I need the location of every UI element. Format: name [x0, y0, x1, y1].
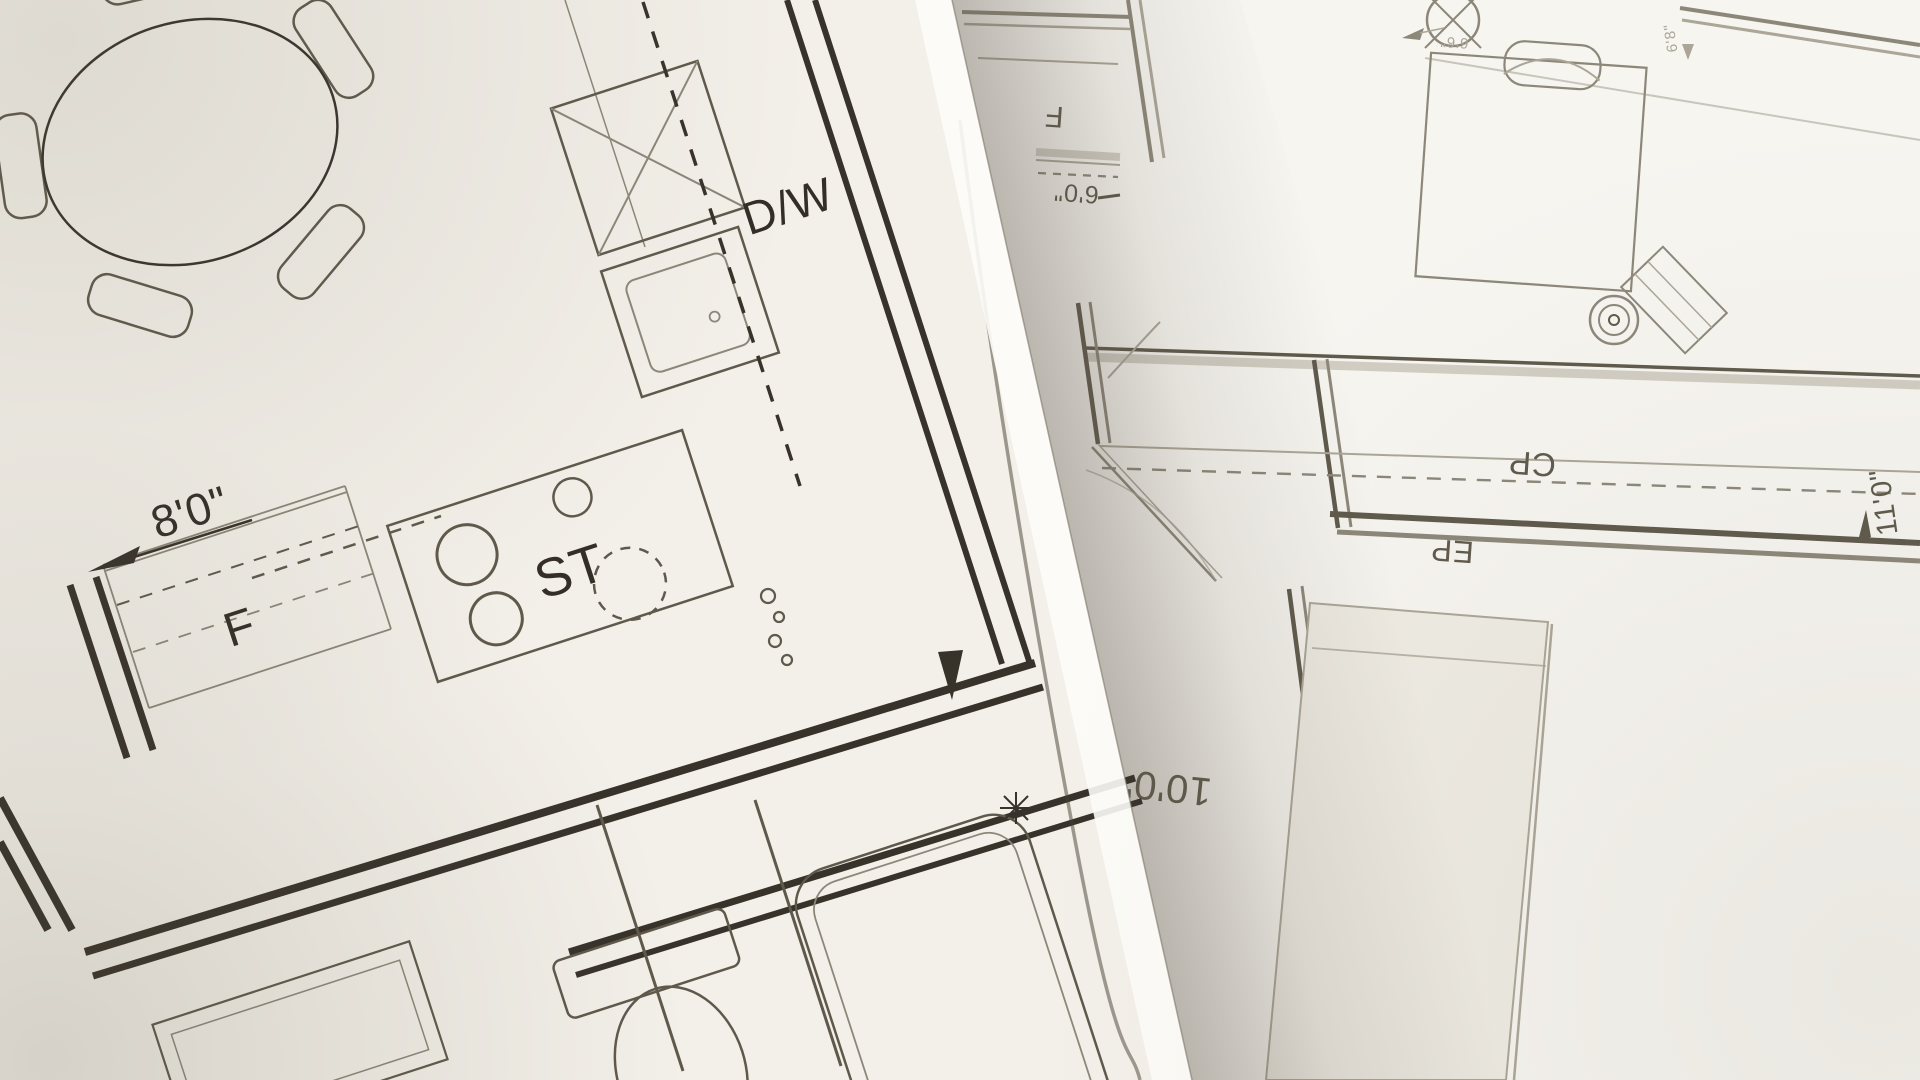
blueprint-photo: F 6'0" — [0, 0, 1920, 1080]
vignette-right — [0, 0, 1920, 1080]
blueprint-scene: F 6'0" — [0, 0, 1920, 1080]
